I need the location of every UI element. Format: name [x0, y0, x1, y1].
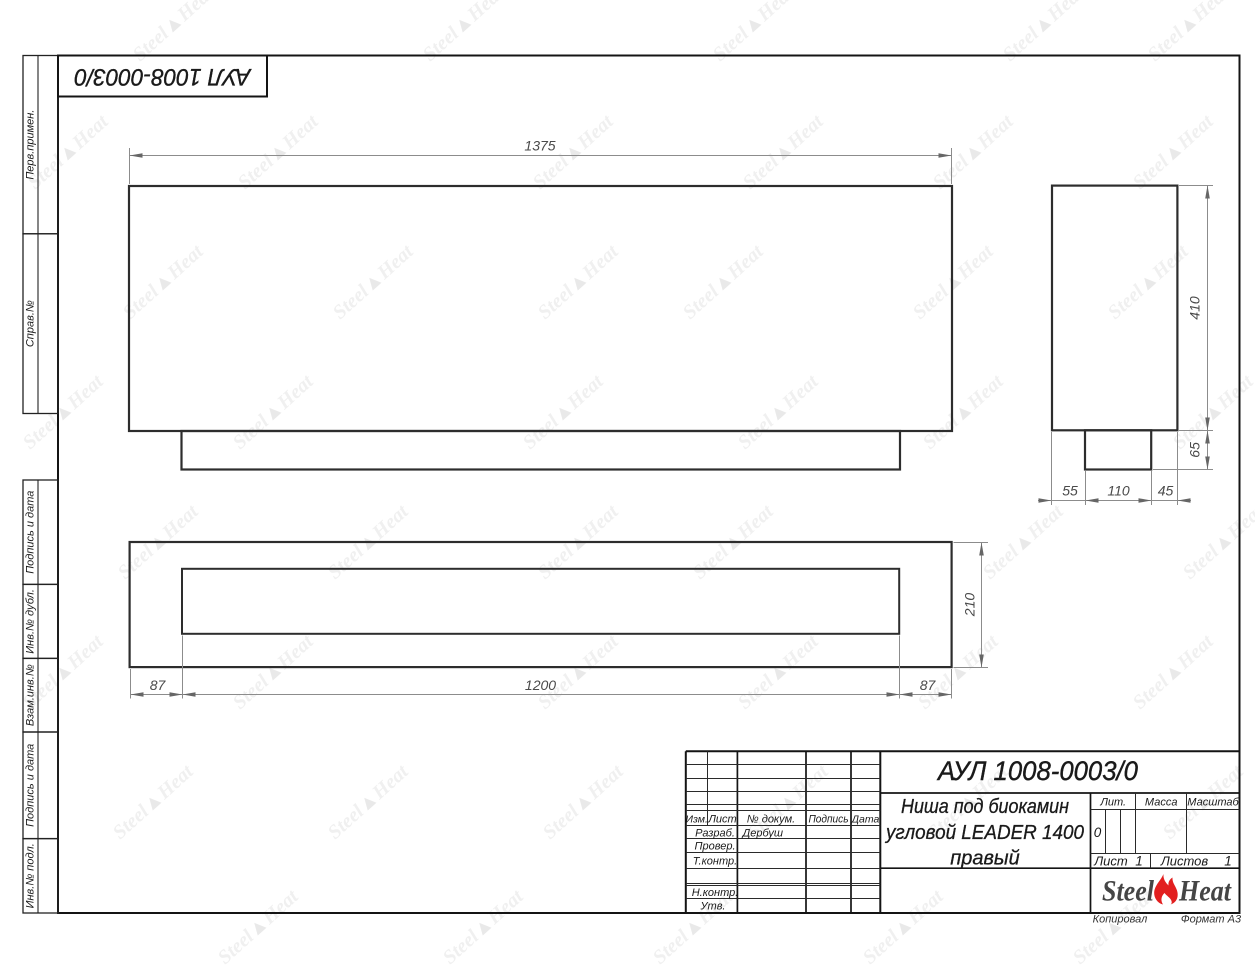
- svg-text:210: 210: [961, 593, 977, 618]
- svg-text:410: 410: [1187, 296, 1203, 320]
- svg-text:Подпись: Подпись: [809, 814, 849, 826]
- svg-text:Утв.: Утв.: [700, 901, 726, 913]
- svg-text:Масштаб: Масштаб: [1187, 797, 1239, 809]
- svg-text:Масса: Масса: [1145, 797, 1178, 809]
- svg-text:Формат А3: Формат А3: [1181, 914, 1242, 926]
- svg-text:АУЛ 1008-0003/0: АУЛ 1008-0003/0: [936, 756, 1138, 786]
- svg-text:АУЛ 1008-0003/0: АУЛ 1008-0003/0: [74, 63, 252, 90]
- svg-text:1: 1: [1224, 853, 1232, 868]
- svg-text:правый: правый: [950, 848, 1020, 870]
- svg-text:Взам.инв.№: Взам.инв.№: [25, 664, 37, 726]
- svg-text:Лист: Лист: [707, 814, 736, 826]
- svg-text:Изм.: Изм.: [686, 814, 708, 826]
- svg-text:Лит.: Лит.: [1099, 797, 1126, 809]
- svg-text:87: 87: [150, 677, 167, 693]
- svg-text:Дата: Дата: [851, 814, 880, 826]
- svg-text:65: 65: [1187, 442, 1203, 458]
- svg-text:Т.контр.: Т.контр.: [693, 855, 737, 867]
- svg-text:Подпись и дата: Подпись и дата: [25, 491, 37, 574]
- svg-text:Справ.№: Справ.№: [25, 300, 37, 347]
- svg-text:Н.контр.: Н.контр.: [692, 887, 739, 899]
- svg-text:55: 55: [1062, 483, 1078, 499]
- svg-text:Подпись и дата: Подпись и дата: [25, 744, 37, 827]
- svg-text:Копировал: Копировал: [1093, 914, 1148, 926]
- svg-text:Разраб.: Разраб.: [695, 827, 735, 839]
- svg-text:Инв.№ подл.: Инв.№ подл.: [25, 843, 37, 908]
- svg-text:45: 45: [1158, 483, 1174, 499]
- svg-text:1375: 1375: [524, 138, 555, 154]
- svg-text:87: 87: [920, 677, 937, 693]
- svg-text:1200: 1200: [525, 677, 556, 693]
- svg-text:Дербуш: Дербуш: [741, 827, 784, 839]
- svg-text:№ докум.: № докум.: [747, 814, 795, 826]
- svg-text:Листов: Листов: [1160, 853, 1209, 868]
- svg-text:Провер.: Провер.: [695, 841, 736, 853]
- svg-text:Steel: Steel: [1102, 875, 1155, 908]
- svg-text:1: 1: [1135, 853, 1143, 868]
- svg-text:угловой LEADER 1400: угловой LEADER 1400: [884, 822, 1084, 844]
- svg-text:Heat: Heat: [1178, 875, 1232, 908]
- svg-text:Перв.примен.: Перв.примен.: [25, 110, 37, 180]
- svg-text:Лист: Лист: [1093, 853, 1128, 868]
- svg-text:Ниша под биокамин: Ниша под биокамин: [901, 796, 1069, 818]
- svg-text:0: 0: [1094, 825, 1102, 840]
- svg-text:110: 110: [1107, 483, 1130, 499]
- svg-text:Инв.№ дубл.: Инв.№ дубл.: [25, 589, 37, 654]
